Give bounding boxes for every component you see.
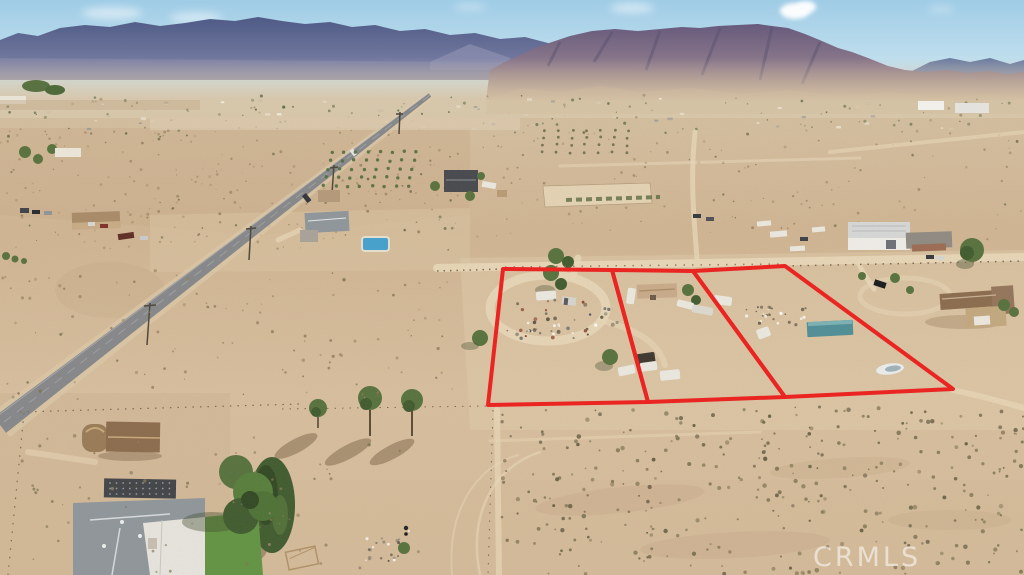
aerial-photo: CRMLS bbox=[0, 0, 1024, 575]
mls-watermark: CRMLS bbox=[813, 542, 921, 573]
grain-overlay bbox=[0, 118, 1024, 575]
